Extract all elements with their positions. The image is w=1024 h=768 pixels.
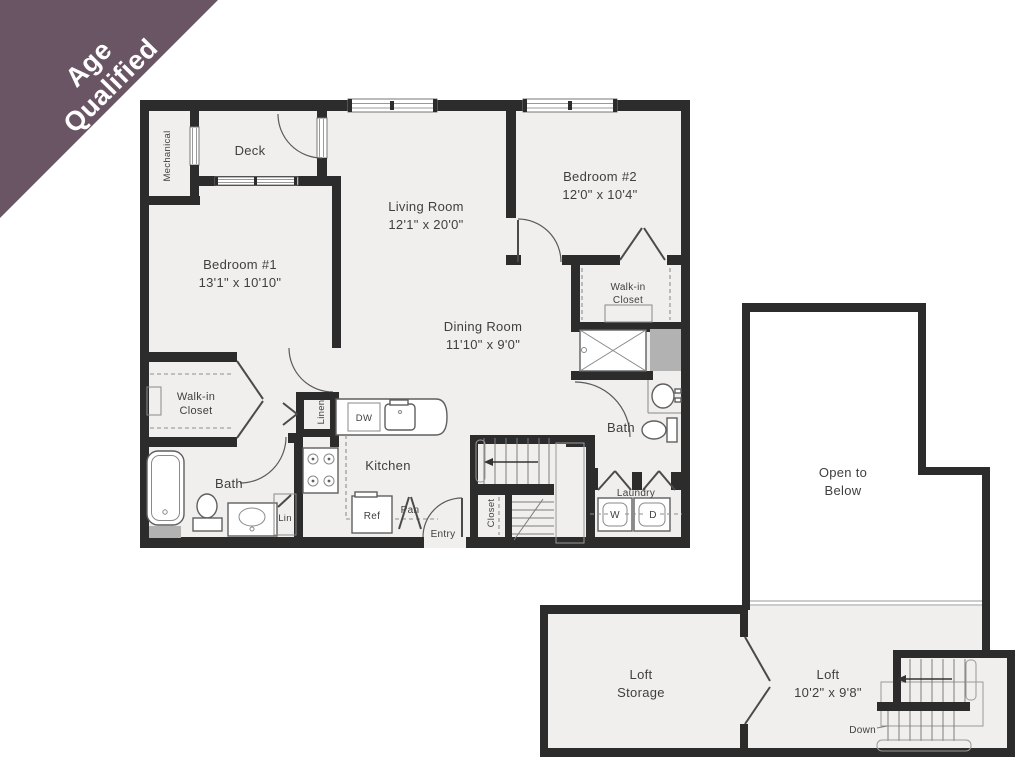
- bedroom2-dims: 12'0" x 10'4": [562, 187, 637, 202]
- loft-storage-line2: Storage: [617, 685, 665, 700]
- walk-in-closet1-line2: Closet: [180, 405, 213, 417]
- stair-closet-label: Closet: [486, 499, 497, 528]
- loft-wall-bottom: [540, 748, 1015, 757]
- entry-label: Entry: [431, 529, 456, 540]
- living-room-dims: 12'1" x 20'0": [388, 217, 463, 232]
- bath1-label: Bath: [215, 476, 243, 491]
- sink-icon: [228, 503, 277, 536]
- lin-label: Lin: [278, 513, 292, 524]
- dryer-label: D: [649, 510, 657, 521]
- dining-room-dims: 11'10" x 9'0": [446, 337, 520, 352]
- linen-label: Linen: [316, 400, 327, 425]
- loft-dims: 10'2" x 9'8": [794, 685, 862, 700]
- floor-plan-drawing: Mechanical Deck Bedroom #1 13'1" x 10': [0, 0, 1024, 768]
- refrigerator-icon: Ref: [352, 492, 392, 533]
- ref-label: Ref: [364, 511, 380, 522]
- pan-label: Pan: [401, 505, 420, 516]
- walk-in-closet2-line2: Closet: [613, 295, 643, 306]
- plumbing-chase: [149, 526, 181, 538]
- mechanical-chase: [650, 329, 681, 371]
- stove-icon: [303, 448, 338, 493]
- living-room-name: Living Room: [388, 199, 464, 214]
- loft-floor: [548, 606, 982, 748]
- loft-stair-landing: [877, 702, 970, 711]
- walk-in-closet1-line1: Walk-in: [177, 391, 215, 403]
- bedroom2-name: Bedroom #2: [563, 169, 637, 184]
- washer-label: W: [610, 510, 620, 521]
- dw-label: DW: [356, 413, 372, 424]
- down-label: Down: [849, 725, 876, 736]
- walk-in-closet2-line1: Walk-in: [610, 282, 645, 293]
- open-to-below-line2: Below: [825, 483, 862, 498]
- kitchen-sink-icon: [385, 400, 415, 430]
- wall-outer-bottom-left: [140, 537, 424, 548]
- bath2-label: Bath: [607, 420, 635, 435]
- kitchen-label: Kitchen: [365, 458, 410, 473]
- open-to-below-line1: Open to: [819, 465, 867, 480]
- bedroom1-name: Bedroom #1: [203, 257, 277, 272]
- living-room-window-icon: [348, 99, 437, 112]
- mechanical-label: Mechanical: [162, 130, 173, 181]
- dining-room-name: Dining Room: [444, 319, 522, 334]
- loft-name: Loft: [817, 667, 840, 682]
- main-unit: Mechanical Deck Bedroom #1 13'1" x 10': [140, 99, 690, 548]
- loft-storage-line1: Loft: [630, 667, 653, 682]
- bedroom2-window-icon: [523, 99, 617, 112]
- floor-plan-page: Mechanical Deck Bedroom #1 13'1" x 10': [0, 0, 1024, 768]
- bedroom1-dims: 13'1" x 10'10": [199, 275, 282, 290]
- deck-label: Deck: [235, 143, 266, 158]
- shower-icon: [580, 330, 646, 371]
- stair-landing: [474, 484, 554, 495]
